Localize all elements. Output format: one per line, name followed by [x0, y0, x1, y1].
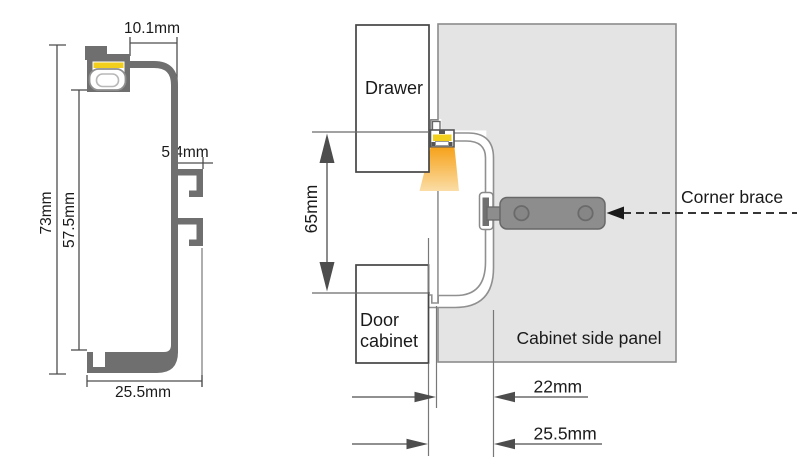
drawer-box — [356, 25, 429, 172]
diffuser-clip-right — [449, 142, 453, 146]
side-panel-label: Cabinet side panel — [517, 328, 662, 348]
drawer-label: Drawer — [365, 78, 423, 98]
mounting-clip-upper — [177, 169, 203, 197]
technical-diagram: 73mm 57.5mm 10.1mm 5.4mm 25.5mm — [0, 0, 800, 475]
diagram-canvas: 73mm 57.5mm 10.1mm 5.4mm 25.5mm — [0, 0, 800, 475]
dim-65-label: 65mm — [301, 185, 321, 234]
dim-73-label: 73mm — [38, 191, 55, 234]
dim-54-label: 5.4mm — [161, 144, 208, 161]
profile-wall — [130, 65, 175, 354]
mounting-clip-lower — [177, 218, 203, 246]
door-cabinet-label-line1: Door — [360, 310, 399, 330]
dim-255-label: 25.5mm — [115, 384, 171, 401]
brace-hole-right — [578, 206, 592, 220]
diffuser-clip-left — [432, 142, 436, 146]
led-strip — [94, 63, 124, 69]
dim-255r-arrow-right — [494, 439, 515, 449]
door-cabinet-label-line2: cabinet — [360, 331, 418, 351]
profile-bottom-foot — [87, 345, 178, 373]
channel-top-tab — [439, 130, 445, 134]
dim-575-label: 57.5mm — [61, 192, 78, 248]
dim-255r-label: 25.5mm — [534, 424, 597, 444]
diffuser-installed — [436, 142, 449, 146]
dim-22-arrow-left — [415, 392, 437, 402]
corner-brace-label: Corner brace — [681, 187, 783, 207]
profile-cross-section: 73mm 57.5mm 10.1mm 5.4mm 25.5mm — [38, 20, 213, 401]
dim-65-arrow-down — [320, 262, 335, 292]
brace-hole-left — [514, 206, 528, 220]
dim-22-label: 22mm — [534, 377, 583, 397]
dim-255r-arrow-left — [407, 439, 429, 449]
dim-22-arrow-right — [494, 392, 515, 402]
installation-view: Corner brace Drawer Door cabinet Cabinet… — [301, 24, 797, 457]
dim-101-label: 10.1mm — [124, 20, 180, 37]
led-strip-installed — [433, 135, 452, 142]
dim-65-arrow-up — [320, 134, 335, 164]
